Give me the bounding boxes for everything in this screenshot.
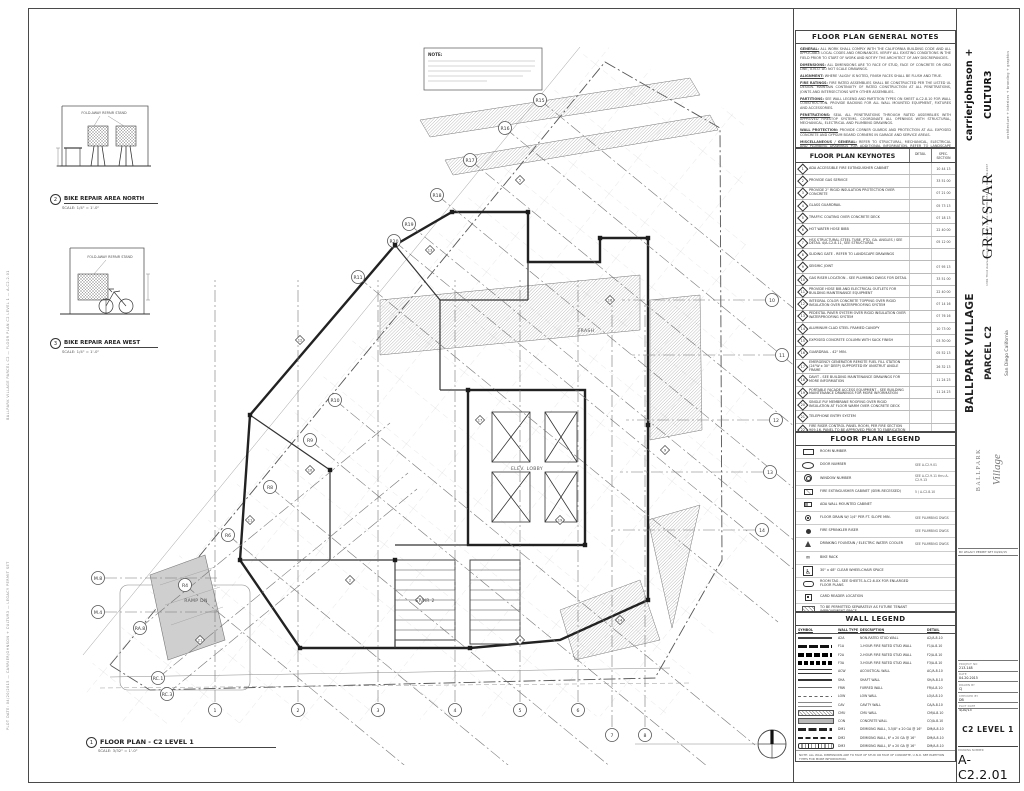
wall-description: DEMISING WALL, 8" x 20 GA @ 16" — [860, 744, 927, 748]
legend-symbol: ♿ — [796, 566, 820, 576]
svg-text:11: 11 — [248, 518, 253, 522]
svg-text:17: 17 — [478, 418, 483, 422]
svg-text:R9: R9 — [307, 438, 313, 444]
keynote-row: 20SINGLE PLY MEMBRANE ROOFING OVER RIGID… — [796, 399, 955, 411]
wall-type: F2A — [838, 653, 860, 657]
keynote-symbol: 3 — [796, 189, 809, 197]
wall-detail-ref: A2/A-8.10 — [927, 636, 953, 640]
wall-legend-row: F1A1-HOUR FIRE RATED STUD WALLF1/A-8.10 — [796, 642, 955, 650]
legend-row: FIRE SPRINKLER RISERSEE PLUMBING DWGS — [796, 525, 955, 538]
keynote-text: PEDESTAL PAVER SYSTEM OVER RIGID INSULAT… — [809, 311, 909, 321]
title-block-field: CHECKED BYDB — [958, 692, 1018, 703]
keynote-row: 10GAS RISER LOCATION - SEE PLUMBING DWGS… — [796, 274, 955, 286]
keynote-symbol: 2 — [796, 177, 809, 185]
project-name-block: BALLPARK VILLAGE PARCEL C2 San Diego Cal… — [958, 293, 1018, 443]
legend-symbol — [796, 529, 820, 534]
wall-legend-row: CONCONCRETE WALLCO/A-8.10 — [796, 717, 955, 725]
legend-title: FLOOR PLAN LEGEND — [796, 433, 955, 446]
wall-type: DM2 — [838, 736, 860, 740]
general-notes-panel: FLOOR PLAN GENERAL NOTES GENERAL: ALL WO… — [795, 30, 956, 148]
keynote-diamond-icon: 9 — [797, 262, 808, 273]
keynote-detail — [909, 212, 931, 223]
wall-legend-row: F3A3-HOUR FIRE RATED STUD WALLF3/A-8.10 — [796, 659, 955, 667]
wall-legend-panel: WALL LEGEND SYMBOL WALL TYPE DESCRIPTION… — [795, 612, 956, 762]
wall-line-sample — [798, 728, 832, 730]
wall-legend-row: SHASHAFT WALLSH/A-8.10 — [796, 675, 955, 683]
keynote-symbol: 11 — [796, 288, 809, 296]
keynote-text: HOT WATER HOSE BIBB — [809, 227, 909, 233]
architect-tagline: architecture + interiors + branding + gr… — [1006, 51, 1010, 139]
keynote-detail — [909, 163, 931, 174]
wall-type: A2A — [838, 636, 860, 640]
title-block-fields: PROJECT NO213.148DATE04.20.2015DRAWN BYC… — [958, 660, 1018, 713]
wall-legend-row: ACWACOUSTICAL WALLAC/A-8.10 — [796, 667, 955, 675]
keynote-spec: 07 21 00 — [931, 188, 955, 199]
keynote-diamond-icon: 14 — [797, 323, 808, 334]
keynote-text: GLASS GUARDRAIL — [809, 203, 909, 209]
keynote-diamond-icon: 15 — [797, 335, 808, 346]
keynote-detail — [909, 261, 931, 272]
wall-symbol — [798, 669, 838, 674]
wall-legend-header: SYMBOL WALL TYPE DESCRIPTION DETAIL — [796, 626, 955, 634]
keynote-text: GUARDRAIL - 42" MIN. — [809, 350, 909, 356]
wall-detail-ref: F3/A-8.10 — [927, 661, 953, 665]
wall-line-sample — [798, 687, 832, 688]
keynote-text: INTEGRAL COLOR CONCRETE TOPPING OVER RIG… — [809, 299, 909, 309]
plan-scale: SCALE: 3/32" = 1'-0" — [98, 748, 276, 753]
card-icon — [805, 594, 812, 601]
wall-symbol — [798, 636, 838, 641]
svg-text:RC.1: RC.1 — [153, 676, 164, 682]
keynote-text: TRAFFIC COATING OVER CONCRETE DECK — [809, 215, 909, 221]
keynote-symbol: 7 — [796, 239, 809, 247]
keynote-row: 11PROVIDE HOSE BIB AND ELECTRICAL OUTLET… — [796, 286, 955, 298]
legend-symbol — [796, 489, 820, 495]
door-icon — [802, 462, 814, 469]
riser-icon — [806, 529, 811, 534]
svg-text:STAIR 2: STAIR 2 — [415, 598, 435, 604]
keynote-row: 22FIRE RISER CONTROL PANEL ROOM, PER FIR… — [796, 424, 955, 432]
svg-text:R17: R17 — [465, 158, 474, 164]
svg-text:R6: R6 — [225, 533, 231, 539]
keynote-detail — [909, 387, 931, 398]
wall-description: DEMISING WALL, 3-5/8" x 20 GA @ 16" — [860, 727, 927, 731]
wall-type: ACW — [838, 669, 860, 673]
wall-legend-row: LOWLOW WALLLO/A-8.10 — [796, 692, 955, 700]
wall-legend-row: DM2DEMISING WALL, 6" x 20 GA @ 16"DM/A-8… — [796, 734, 955, 742]
general-notes-body: GENERAL: ALL WORK SHALL COMPLY WITH THE … — [796, 44, 955, 148]
keynote-text: ADA ACCESSIBLE FIRE EXTINGUISHER CABINET — [809, 166, 909, 172]
wall-symbol — [798, 735, 838, 740]
keynote-symbol: 5 — [796, 214, 809, 222]
wall-detail-ref: F2/A-8.10 — [927, 653, 953, 657]
wall-type: CON — [838, 719, 860, 723]
wall-type: SHA — [838, 678, 860, 682]
legend-text: 30" x 48" CLEAR WHEELCHAIR SPACE — [820, 569, 915, 573]
legend-reference: SEE PLUMBING DWGS — [915, 529, 955, 533]
keynote-spec: 03 30 00 — [931, 335, 955, 346]
legend-reference: SEE A-C2.9.01 — [915, 463, 955, 467]
wall-symbol — [798, 652, 838, 657]
architect-stamp: carrierjohnson + CULTUR3 architecture + … — [958, 30, 1018, 160]
keynotes-col-spec: SPEC. SECTION — [931, 149, 955, 162]
legend-text: DOOR NUMBER — [820, 463, 915, 467]
svg-text:11: 11 — [779, 353, 785, 359]
keynote-symbol: 12 — [796, 300, 809, 308]
keynote-detail — [909, 249, 931, 260]
keynote-symbol: 18 — [796, 376, 809, 384]
architect-name: carrierjohnson + CULTUR3 — [964, 49, 994, 142]
panel-divider-right — [956, 8, 957, 783]
wall-symbol — [798, 661, 838, 666]
plan-note-box: NOTE: — [424, 48, 542, 90]
keynote-text: PORTABLE FACADE ACCESS EQUIPMENT - SEE B… — [809, 388, 909, 398]
svg-text:R10: R10 — [330, 398, 339, 404]
wall-line-sample — [798, 669, 832, 674]
wall-line-sample — [798, 718, 834, 724]
wall-line-sample — [798, 696, 832, 697]
keynote-row: 4GLASS GUARDRAIL05 73 13 — [796, 200, 955, 212]
keynote-detail — [909, 347, 931, 358]
wall-line-sample — [798, 679, 832, 681]
general-note-paragraph: FIRE RATINGS: FIRE RATED ASSEMBLIES SHAL… — [800, 81, 951, 94]
keynote-text: EXPOSED CONCRETE COLUMN WITH SACK FINISH — [809, 338, 909, 344]
wall-legend-row: A2ANON-RATED STUD WALLA2/A-8.10 — [796, 634, 955, 642]
wall-description: LOW WALL — [860, 694, 927, 698]
keynote-detail — [909, 274, 931, 285]
keynote-text: SINGLE PLY MEMBRANE ROOFING OVER RIGID I… — [809, 400, 909, 410]
wall-line-sample — [798, 702, 832, 707]
legend-row: DOOR NUMBERSEE A-C2.9.01 — [796, 459, 955, 472]
keynote-row: 12INTEGRAL COLOR CONCRETE TOPPING OVER R… — [796, 298, 955, 310]
keynote-spec: 11 24 23 — [931, 387, 955, 398]
plan-title-text: FLOOR PLAN - C2 LEVEL 1 — [100, 738, 276, 748]
keynote-row: 16GUARDRAIL - 42" MIN.05 52 13 — [796, 347, 955, 359]
keynote-text: SLIDING GATE - REFER TO LANDSCAPE DRAWIN… — [809, 252, 909, 258]
keynote-symbol: 16 — [796, 349, 809, 357]
sheet-number: A-C2.2.01 — [958, 752, 1018, 782]
svg-text:M.8: M.8 — [94, 576, 102, 582]
wall-legend-row: CMUCMU WALLCM/A-8.10 — [796, 709, 955, 717]
wall-type: DM3 — [838, 744, 860, 748]
bike-icon: ∞ — [806, 555, 811, 561]
keynote-diamond-icon: 1 — [797, 163, 808, 174]
legend-symbol — [796, 502, 820, 507]
legend-symbol — [796, 515, 820, 521]
keynotes-col-detail: DETAIL — [909, 149, 931, 162]
keynote-symbol: 1 — [796, 165, 809, 173]
keynote-text: HSS STRUCTURAL STEEL TUBE, PTD, GA. ANGL… — [809, 238, 909, 248]
keynote-text: SEISMIC JOINT — [809, 264, 909, 270]
keynote-diamond-icon: 22 — [797, 424, 808, 432]
wall-legend-row: DM3DEMISING WALL, 8" x 20 GA @ 16"DM/A-8… — [796, 742, 955, 750]
legend-row: ROOM TAG - SEE SHEETS A-C2.6.XX FOR ENLA… — [796, 578, 955, 591]
field-value: 04.20.2015 — [959, 676, 1017, 680]
wall-symbol — [798, 694, 838, 699]
keynote-detail — [909, 224, 931, 235]
project-name: BALLPARK VILLAGE — [964, 293, 976, 413]
wall-line-sample — [798, 737, 832, 739]
svg-text:2: 2 — [297, 708, 300, 714]
keynote-spec: 07 76 16 — [931, 311, 955, 322]
legend-row: ♿30" x 48" CLEAR WHEELCHAIR SPACE — [796, 565, 955, 578]
wall-line-sample — [798, 645, 832, 648]
keynote-text: ALUMINUM CLAD STEEL FRAMED CANOPY — [809, 326, 909, 332]
legend-symbol: ∞ — [796, 555, 820, 561]
legend-row: WINDOW NUMBERSEE A-C2.9.11 thru A-C2.9.1… — [796, 472, 955, 485]
wall-symbol — [798, 719, 838, 724]
keynote-symbol: 19 — [796, 389, 809, 397]
keynote-row: 15EXPOSED CONCRETE COLUMN WITH SACK FINI… — [796, 335, 955, 347]
wall-type: DM1 — [838, 727, 860, 731]
keynote-symbol: 4 — [796, 202, 809, 210]
legend-row: DRINKING FOUNTAIN / ELECTRIC WATER COOLE… — [796, 538, 955, 551]
svg-text:13: 13 — [428, 248, 433, 252]
wall-description: NON-RATED STUD WALL — [860, 636, 927, 640]
wall-detail-ref: DM/A-8.10 — [927, 727, 953, 731]
legend-symbol — [796, 581, 820, 587]
keynote-row: 9SEISMIC JOINT07 95 13 — [796, 261, 955, 273]
legend-text: ROOM NUMBER — [820, 450, 915, 454]
legend-reference: SEE PLUMBING DWGS — [915, 542, 955, 546]
wall-detail-ref: CO/A-8.10 — [927, 719, 953, 723]
keynote-text: DAVIT - SEE BUILDING MAINTENANCE DRAWING… — [809, 375, 909, 385]
keynote-spec: 05 73 13 — [931, 200, 955, 211]
keynote-diamond-icon: 13 — [797, 311, 808, 322]
legend-text: WINDOW NUMBER — [820, 477, 915, 481]
general-note-paragraph: DIMENSIONS: ALL DIMENSIONS ARE TO FACE O… — [800, 63, 951, 72]
legend-row: ADA WALL MOUNTED CABINET — [796, 499, 955, 512]
general-note-paragraph: MISCELLANEOUS / GENERAL: REFER TO STRUCT… — [800, 140, 951, 148]
panel-divider-left — [793, 8, 794, 783]
keynote-detail — [909, 237, 931, 248]
keynote-row: 5TRAFFIC COATING OVER CONCRETE DECK07 18… — [796, 212, 955, 224]
keynote-row: 8SLIDING GATE - REFER TO LANDSCAPE DRAWI… — [796, 249, 955, 261]
keynote-spec: 11 24 23 — [931, 374, 955, 385]
keynote-detail — [909, 175, 931, 186]
keynote-spec — [931, 411, 955, 422]
wall-legend-table: A2ANON-RATED STUD WALLA2/A-8.10F1A1-HOUR… — [796, 634, 955, 750]
keynote-symbol: 9 — [796, 263, 809, 271]
wall-line-sample — [798, 743, 834, 749]
keynote-symbol: 10 — [796, 276, 809, 284]
wall-detail-ref: LO/A-8.10 — [927, 694, 953, 698]
svg-text:10: 10 — [769, 298, 775, 304]
keynote-symbol: 8 — [796, 251, 809, 259]
wall-description: SHAFT WALL — [860, 678, 927, 682]
wall-detail-ref: CA/A-8.10 — [927, 703, 953, 707]
keynote-detail — [909, 411, 931, 422]
keynote-symbol: 13 — [796, 312, 809, 320]
drawing-sheet: BALLPARK VILLAGE PARCEL C2 — FLOOR PLAN … — [0, 0, 1024, 791]
keynote-text: PROVIDE 2" RIGID INSULATION PROTECTION O… — [809, 188, 909, 198]
sheet-title: C2 LEVEL 1 — [958, 708, 1018, 736]
legend-text: CARD READER LOCATION — [820, 595, 915, 599]
keynote-diamond-icon: 20 — [797, 399, 808, 410]
keynote-text: PROVIDE HOSE BIB AND ELECTRICAL OUTLETS … — [809, 287, 909, 297]
keynote-detail — [909, 311, 931, 322]
svg-text:19: 19 — [558, 518, 563, 522]
keynote-spec: 07 95 13 — [931, 261, 955, 272]
keynote-symbol: 14 — [796, 325, 809, 333]
client-logo: GREYSTAR — [958, 173, 1018, 273]
keynote-text: FIRE RISER CONTROL PANEL ROOM, PER FIRE … — [809, 424, 909, 432]
keynote-spec: 05 52 13 — [931, 347, 955, 358]
keynote-row: 14ALUMINUM CLAD STEEL FRAMED CANOPY10 73… — [796, 323, 955, 335]
legend-row: CARD READER LOCATION — [796, 591, 955, 604]
keynote-row: 6HOT WATER HOSE BIBB22 40 00 — [796, 224, 955, 236]
svg-text:3: 3 — [377, 708, 380, 714]
keynote-diamond-icon: 5 — [797, 212, 808, 223]
wall-detail-ref: DM/A-8.10 — [927, 744, 953, 748]
keynote-spec — [931, 249, 955, 260]
wall-type: F3A — [838, 661, 860, 665]
wall-description: CMU WALL — [860, 711, 927, 715]
legend-row: ∞BIKE RACK — [796, 552, 955, 565]
svg-text:M.4: M.4 — [94, 610, 102, 616]
keynote-spec: 10 44 13 — [931, 163, 955, 174]
legend-symbol — [796, 594, 820, 601]
window-icon — [804, 474, 812, 482]
keynote-diamond-icon: 7 — [797, 237, 808, 248]
svg-text:7: 7 — [611, 733, 614, 739]
legend-row: FLOOR DRAIN W/ 1/4" PER FT. SLOPE MIN.SE… — [796, 512, 955, 525]
wall-detail-ref: F1/A-8.10 — [927, 644, 953, 648]
wall-description: DEMISING WALL, 6" x 20 GA @ 16" — [860, 736, 927, 740]
svg-text:RAMP DN: RAMP DN — [184, 598, 207, 604]
svg-text:R4: R4 — [182, 583, 188, 589]
keynote-diamond-icon: 10 — [797, 274, 808, 285]
wall-legend-row: CAVCAVITY WALLCA/A-8.10 — [796, 700, 955, 708]
wall-detail-ref: SH/A-8.10 — [927, 678, 953, 682]
keynote-detail — [909, 323, 931, 334]
keynote-spec: 07 18 13 — [931, 212, 955, 223]
keynote-row: 13PEDESTAL PAVER SYSTEM OVER RIGID INSUL… — [796, 311, 955, 323]
svg-text:10: 10 — [308, 468, 313, 472]
north-arrow-icon — [635, 730, 786, 758]
svg-text:1: 1 — [214, 708, 217, 714]
keynote-row: 1ADA ACCESSIBLE FIRE EXTINGUISHER CABINE… — [796, 163, 955, 175]
keynote-diamond-icon: 21 — [797, 412, 808, 423]
legend-text: DRINKING FOUNTAIN / ELECTRIC WATER COOLE… — [820, 542, 915, 546]
legend-reference: SEE PLUMBING DWGS — [915, 516, 955, 520]
keynote-spec: 33 51 00 — [931, 175, 955, 186]
svg-text:RC.3: RC.3 — [162, 692, 173, 698]
fd-icon — [805, 515, 811, 521]
svg-text:16: 16 — [608, 298, 613, 302]
svg-text:2: 2 — [349, 578, 351, 582]
svg-text:14: 14 — [759, 528, 765, 534]
svg-text:12: 12 — [298, 338, 303, 342]
title-block: carrierjohnson + CULTUR3 architecture + … — [958, 8, 1020, 783]
keynote-row: 2PROVIDE GAS SERVICE33 51 00 — [796, 175, 955, 187]
general-notes-title: FLOOR PLAN GENERAL NOTES — [796, 31, 955, 44]
wheelchair-icon: ♿ — [803, 566, 813, 576]
keynote-diamond-icon: 3 — [797, 188, 808, 199]
wall-legend-title: WALL LEGEND — [796, 613, 955, 626]
wall-description: 3-HOUR FIRE RATED STUD WALL — [860, 661, 927, 665]
tag-icon — [803, 581, 814, 587]
legend-reference: SEE A-C2.9.11 thru A-C2.9.13 — [915, 474, 955, 482]
svg-text:14: 14 — [618, 618, 623, 622]
svg-text:21: 21 — [198, 638, 203, 642]
floor-plan-legend-panel: FLOOR PLAN LEGEND ROOM NUMBERDOOR NUMBER… — [795, 432, 956, 612]
keynote-detail — [909, 335, 931, 346]
svg-text:5: 5 — [519, 708, 522, 714]
keynotes-panel: FLOOR PLAN KEYNOTES DETAIL SPEC. SECTION… — [795, 148, 956, 432]
keynote-symbol: 20 — [796, 401, 809, 409]
keynote-spec: 26 32 13 — [931, 360, 955, 374]
svg-text:R18: R18 — [432, 193, 441, 199]
keynote-diamond-icon: 8 — [797, 249, 808, 260]
keynote-spec: 33 51 00 — [931, 274, 955, 285]
title-block-field: DRAWN BYCJ — [958, 681, 1018, 692]
wall-legend-row: F2A2-HOUR FIRE RATED STUD WALLF2/A-8.10 — [796, 651, 955, 659]
legend-symbol — [796, 474, 820, 482]
field-value: DB — [959, 698, 1017, 702]
wall-description: FURRED WALL — [860, 686, 927, 690]
wall-line-sample — [798, 653, 832, 657]
keynote-symbol: 15 — [796, 337, 809, 345]
svg-text:8: 8 — [644, 733, 647, 739]
wall-detail-ref: CM/A-8.10 — [927, 711, 953, 715]
wall-symbol — [798, 727, 838, 732]
keynote-diamond-icon: 2 — [797, 176, 808, 187]
svg-text:6: 6 — [577, 708, 580, 714]
keynote-spec — [931, 424, 955, 432]
legend-symbol — [796, 541, 820, 547]
keynote-diamond-icon: 4 — [797, 200, 808, 211]
keynote-row: 7HSS STRUCTURAL STEEL TUBE, PTD, GA. ANG… — [796, 237, 955, 249]
wall-line-sample — [798, 661, 832, 665]
project-parcel: PARCEL C2 — [984, 326, 994, 380]
wall-type: LOW — [838, 694, 860, 698]
revision-line: BV LEGACY PERMIT SET 04/20/15 — [958, 548, 1018, 556]
wall-symbol — [798, 710, 838, 715]
keynote-text: GAS RISER LOCATION - SEE PLUMBING DWGS F… — [809, 276, 909, 282]
keynote-row: 21TELEPHONE ENTRY SYSTEM — [796, 411, 955, 423]
title-block-field: DATE04.20.2015 — [958, 671, 1018, 682]
svg-text:13: 13 — [767, 470, 773, 476]
wall-symbol — [798, 644, 838, 649]
keynote-row: 18DAVIT - SEE BUILDING MAINTENANCE DRAWI… — [796, 374, 955, 386]
fe-icon — [804, 502, 812, 507]
keynote-symbol: 17 — [796, 363, 809, 371]
keynote-row: 19PORTABLE FACADE ACCESS EQUIPMENT - SEE… — [796, 387, 955, 399]
wall-line-sample — [798, 710, 834, 716]
svg-text:TRASH: TRASH — [577, 328, 595, 334]
room-icon — [803, 449, 814, 455]
keynotes-table: 1ADA ACCESSIBLE FIRE EXTINGUISHER CABINE… — [796, 163, 955, 432]
svg-text:R11: R11 — [353, 275, 362, 281]
keynote-text: EMERGENCY GENERATOR REMOTE FUEL FILL STA… — [809, 360, 909, 374]
wall-symbol — [798, 744, 838, 749]
keynote-spec: 05 12 00 — [931, 237, 955, 248]
keynote-diamond-icon: 11 — [797, 286, 808, 297]
wall-detail-ref: DM/A-8.10 — [927, 736, 953, 740]
svg-text:4: 4 — [454, 708, 457, 714]
legend-symbol — [796, 462, 820, 469]
legend-text: FLOOR DRAIN W/ 1/4" PER FT. SLOPE MIN. — [820, 516, 915, 520]
keynote-text: TELEPHONE ENTRY SYSTEM — [809, 414, 909, 420]
edge-plot-stamp-bottom: PLOT DATE: 04/20/2015 — CARRIERJOHNSON +… — [6, 430, 10, 730]
general-note-paragraph: PENETRATIONS: SEAL ALL PENETRATIONS THRO… — [800, 113, 951, 126]
legend-table: ROOM NUMBERDOOR NUMBERSEE A-C2.9.01WINDO… — [796, 446, 955, 612]
wall-type: CMU — [838, 711, 860, 715]
general-note-paragraph: WALL PROTECTION: PROVIDE CORNER GUARDS A… — [800, 128, 951, 137]
wall-symbol — [798, 677, 838, 682]
keynote-symbol: 6 — [796, 226, 809, 234]
